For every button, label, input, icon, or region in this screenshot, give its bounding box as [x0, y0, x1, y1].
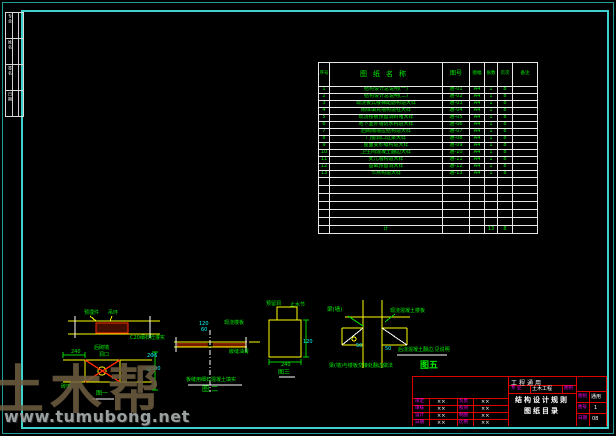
info-value: 1: [594, 406, 597, 411]
sig-label: 制图: [459, 414, 468, 419]
sig-value: ××: [481, 414, 489, 419]
info-label: 图别: [578, 395, 587, 400]
sheet-title: 结构设计规则 图纸目录: [508, 395, 576, 417]
category-label: 图别: [564, 387, 573, 392]
sig-value: ××: [437, 421, 445, 426]
sig-value: ××: [481, 407, 489, 412]
sig-label: 审核: [415, 407, 424, 412]
sheet-title-line2: 图纸目录: [508, 406, 576, 417]
fig2-caption: 图 二: [202, 386, 218, 393]
info-value: 通用: [591, 395, 601, 400]
fig3-label-b: 止水节: [290, 303, 305, 308]
fig3-dim: 240: [281, 363, 291, 368]
fig3-label-a: 预留洞: [266, 302, 281, 307]
sig-label: 审定: [415, 400, 424, 405]
sig-value: ××: [437, 400, 445, 405]
fig2-label-b: 嵌缝油膏: [229, 350, 249, 355]
major-label: 专 业: [511, 387, 521, 392]
fig-embed-label-a: 预埋件: [84, 311, 99, 316]
sig-label: 负责: [459, 400, 468, 405]
fig5-caption: 图五: [420, 362, 438, 371]
fig2-note: 板缝用细石混凝土填实: [186, 378, 236, 383]
sig-value: ××: [481, 421, 489, 426]
watermark-url: www.tumubong.net: [4, 407, 190, 426]
sig-label: 设计: [415, 414, 424, 419]
fig3-caption: 图三: [278, 370, 290, 376]
sig-label: 日期: [415, 421, 424, 426]
fig5-note: 梁(墙)与楼板交接处翻边做法: [329, 364, 393, 369]
fig2-cyan-b: 60: [201, 328, 207, 333]
fig5-label-b: 现浇混凝土楼板: [390, 309, 425, 314]
sheet-title-line1: 结构设计规则: [508, 395, 576, 406]
title-block: 工程通用 专 业 土木工程 图别 结构设计规则 图纸目录 图别 通用 图号 1 …: [412, 376, 607, 426]
sig-value: ××: [437, 414, 445, 419]
cad-sheet: 专业 姓名 签名 日期 序号 图纸名称 图号 图幅 张数 页次: [0, 0, 616, 436]
fig-embed-label-c: C20细石砼灌实: [130, 336, 165, 341]
sig-value: ××: [481, 400, 489, 405]
fig5-dim-b: 50: [385, 347, 391, 352]
sig-value: ××: [437, 407, 445, 412]
info-value: 08: [592, 417, 598, 422]
fig-embed-label-b: 吊环: [108, 311, 118, 316]
fig2-label-a: 现浇楼板: [224, 321, 244, 326]
major-value: 土木工程: [532, 387, 552, 392]
fig5-label-c: 后浇混凝土翻边,见说明: [398, 348, 450, 353]
info-label: 图号: [578, 406, 587, 411]
fig3-cyan: 120: [303, 340, 313, 345]
fig5-dim-a: 50: [356, 344, 362, 349]
sig-label: 比例: [459, 421, 468, 426]
fig5-label-a: 梁(墙): [327, 308, 342, 314]
sig-label: 校对: [459, 407, 468, 412]
info-label: 日期: [578, 417, 587, 422]
